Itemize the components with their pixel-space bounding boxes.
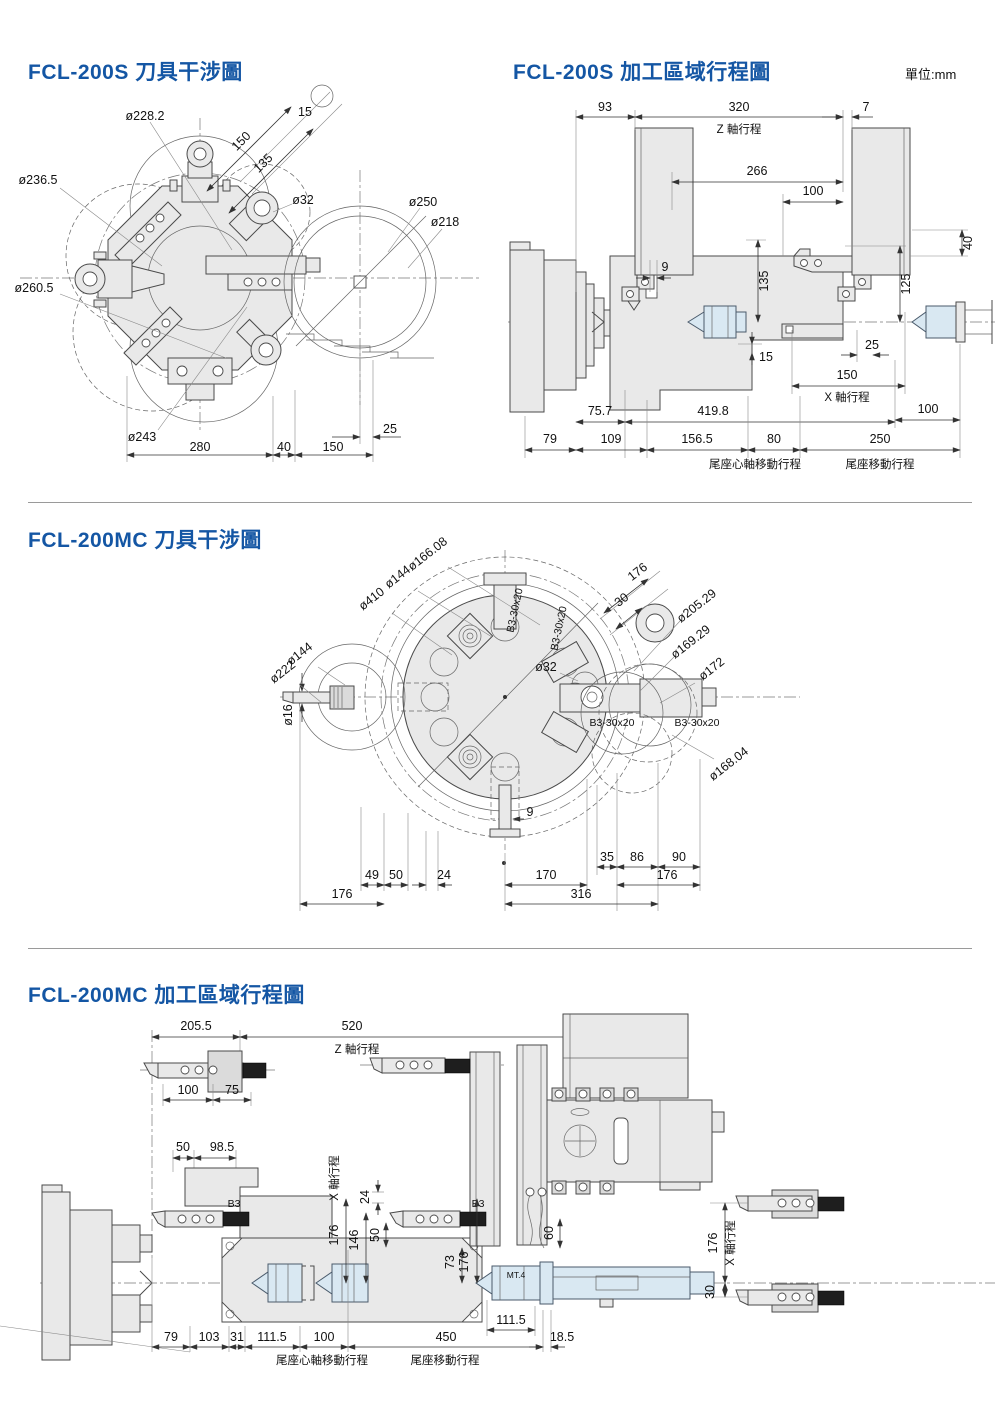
- dim-label: ø32: [292, 193, 314, 207]
- dim-label: 50: [176, 1140, 190, 1154]
- dim-label: 18.5: [550, 1330, 574, 1344]
- fcl200s-stroke-diagram: 93 320 7 Z 軸行程 266 100 40 125 135 9: [500, 60, 1000, 485]
- dim-label: ø260.5: [15, 281, 54, 295]
- dim-label: 100: [314, 1330, 335, 1344]
- dim-label: 79: [543, 432, 557, 446]
- dim-label: ø166.08: [405, 534, 450, 573]
- dim-label: 205.5: [180, 1019, 211, 1033]
- dim-label: 170: [536, 868, 557, 882]
- dim-label: 15: [759, 350, 773, 364]
- dim-label: ø218: [431, 215, 460, 229]
- dim-label: 150: [229, 129, 254, 154]
- dim-label: 316: [571, 887, 592, 901]
- dim-label: 135: [757, 271, 771, 292]
- dim-label: 86: [630, 850, 644, 864]
- dim-label: 176: [657, 868, 678, 882]
- dim-label: 111.5: [257, 1330, 286, 1344]
- dim-label: ø172: [696, 655, 727, 684]
- dim-label: 98.5: [210, 1140, 234, 1154]
- tailstock-spindle-travel-label: 尾座心軸移動行程: [709, 457, 801, 471]
- dim-label: 35: [600, 850, 614, 864]
- dim-label: 100: [178, 1083, 199, 1097]
- taper-label: MT.4: [507, 1270, 526, 1280]
- dim-label: 73: [443, 1255, 457, 1269]
- dim-label: ø32: [535, 660, 557, 674]
- dim-label: ø228.2: [126, 109, 165, 123]
- dim-label: 30: [703, 1285, 717, 1299]
- dim-label: 419.8: [697, 404, 728, 418]
- upper-left-boring-tool: 100 75: [144, 1051, 266, 1106]
- section-divider: [28, 502, 972, 503]
- dim-label: 49: [365, 868, 379, 882]
- dim-label: 25: [865, 338, 879, 352]
- tailstock-travel-label: 尾座移動行程: [411, 1353, 480, 1367]
- dim-label: ø169.29: [668, 622, 713, 661]
- dim-label: 75.7: [588, 404, 612, 418]
- dim-label: 7: [863, 100, 870, 114]
- headstock-chuck: [510, 242, 610, 412]
- dim-label: 135: [251, 151, 276, 176]
- milling-head: [470, 1014, 724, 1248]
- dim-label: ø168.04: [706, 744, 751, 783]
- fcl200s-tool-interference-diagram: ø228.2 15 150 135 ø236.5 ø32 ø250 ø218 ø…: [0, 60, 500, 495]
- dim-label: 176: [327, 1225, 341, 1246]
- dim-label: 266: [747, 164, 768, 178]
- dim-label: 146: [347, 1230, 361, 1251]
- dim-label: B3-30x20: [675, 717, 720, 729]
- dim-label: 520: [342, 1019, 363, 1033]
- dim-label: B3: [472, 1198, 485, 1210]
- dim-label: 25: [383, 422, 397, 436]
- dim-label: B3-30x20: [590, 717, 635, 729]
- dim-label: 79: [164, 1330, 178, 1344]
- dim-label: 24: [358, 1190, 372, 1204]
- x-axis-stroke-label: X 軸行程: [723, 1220, 737, 1266]
- dim-label: 90: [672, 850, 686, 864]
- dim-label: 9: [662, 260, 669, 274]
- dim-label: 176: [457, 1252, 471, 1273]
- dim-label: 280: [190, 440, 211, 454]
- x-axis-stroke-label: X 軸行程: [327, 1155, 341, 1201]
- z-axis-stroke-label: Z 軸行程: [335, 1042, 380, 1056]
- dim-label: 109: [601, 432, 622, 446]
- dim-label: 24: [437, 868, 451, 882]
- dim-label: 150: [837, 368, 858, 382]
- dim-label: 250: [870, 432, 891, 446]
- tailstock-spindle-travel-label: 尾座心軸移動行程: [276, 1353, 368, 1367]
- dim-label: ø205.29: [674, 586, 719, 625]
- right-boring-tools: 176 X 軸行程 30: [703, 1190, 844, 1312]
- dim-label: 50: [389, 868, 403, 882]
- fcl200mc-tool-interference-diagram: 9 ø16 ø166.08 ø144: [0, 545, 1000, 945]
- dim-label: 31: [230, 1330, 244, 1344]
- dim-label: 320: [729, 100, 750, 114]
- dim-label: 103: [199, 1330, 220, 1344]
- dim-label: 450: [436, 1330, 457, 1344]
- dim-label: 40: [961, 236, 975, 250]
- dim-label: 30: [612, 590, 632, 610]
- dim-label: ø250: [409, 195, 438, 209]
- tailstock: MT.4: [476, 1262, 714, 1307]
- dim-label: 125: [899, 274, 913, 295]
- dim-label: 150: [323, 440, 344, 454]
- dim-label: 9: [527, 805, 534, 819]
- fcl200mc-stroke-diagram: 205.5 520 Z 軸行程 100 75 50 98.5: [0, 1000, 1000, 1400]
- slide-boring-tool-lower: B3: [390, 1198, 486, 1227]
- section-divider: [28, 948, 972, 949]
- dim-label: 80: [767, 432, 781, 446]
- slide-boring-tool-upper: [370, 1058, 470, 1073]
- dim-label: ø410: [356, 585, 387, 614]
- dim-label: 15: [298, 105, 312, 119]
- dim-label: 176: [706, 1233, 720, 1254]
- dim-label: 50: [368, 1228, 382, 1242]
- dim-label: 111.5: [496, 1313, 525, 1327]
- dim-label: ø16: [281, 704, 295, 726]
- dim-label: 40: [277, 440, 291, 454]
- dim-label: ø243: [128, 430, 157, 444]
- dim-label: 93: [598, 100, 612, 114]
- dim-label: 60: [542, 1226, 556, 1240]
- dim-label: B3: [228, 1198, 241, 1210]
- dim-label: 75: [225, 1083, 239, 1097]
- catalog-page: FCL-200S 刀具干涉圖 FCL-200S 加工區域行程圖 單位:mm FC…: [0, 0, 1000, 1403]
- dim-label: 100: [803, 184, 824, 198]
- tailstock-travel-label: 尾座移動行程: [846, 457, 915, 471]
- dim-label: 100: [918, 402, 939, 416]
- dim-label: ø236.5: [19, 173, 58, 187]
- x-axis-stroke-label: X 軸行程: [824, 390, 870, 404]
- dim-label: 156.5: [681, 432, 712, 446]
- z-axis-stroke-label: Z 軸行程: [717, 122, 762, 136]
- dim-label: 176: [332, 887, 353, 901]
